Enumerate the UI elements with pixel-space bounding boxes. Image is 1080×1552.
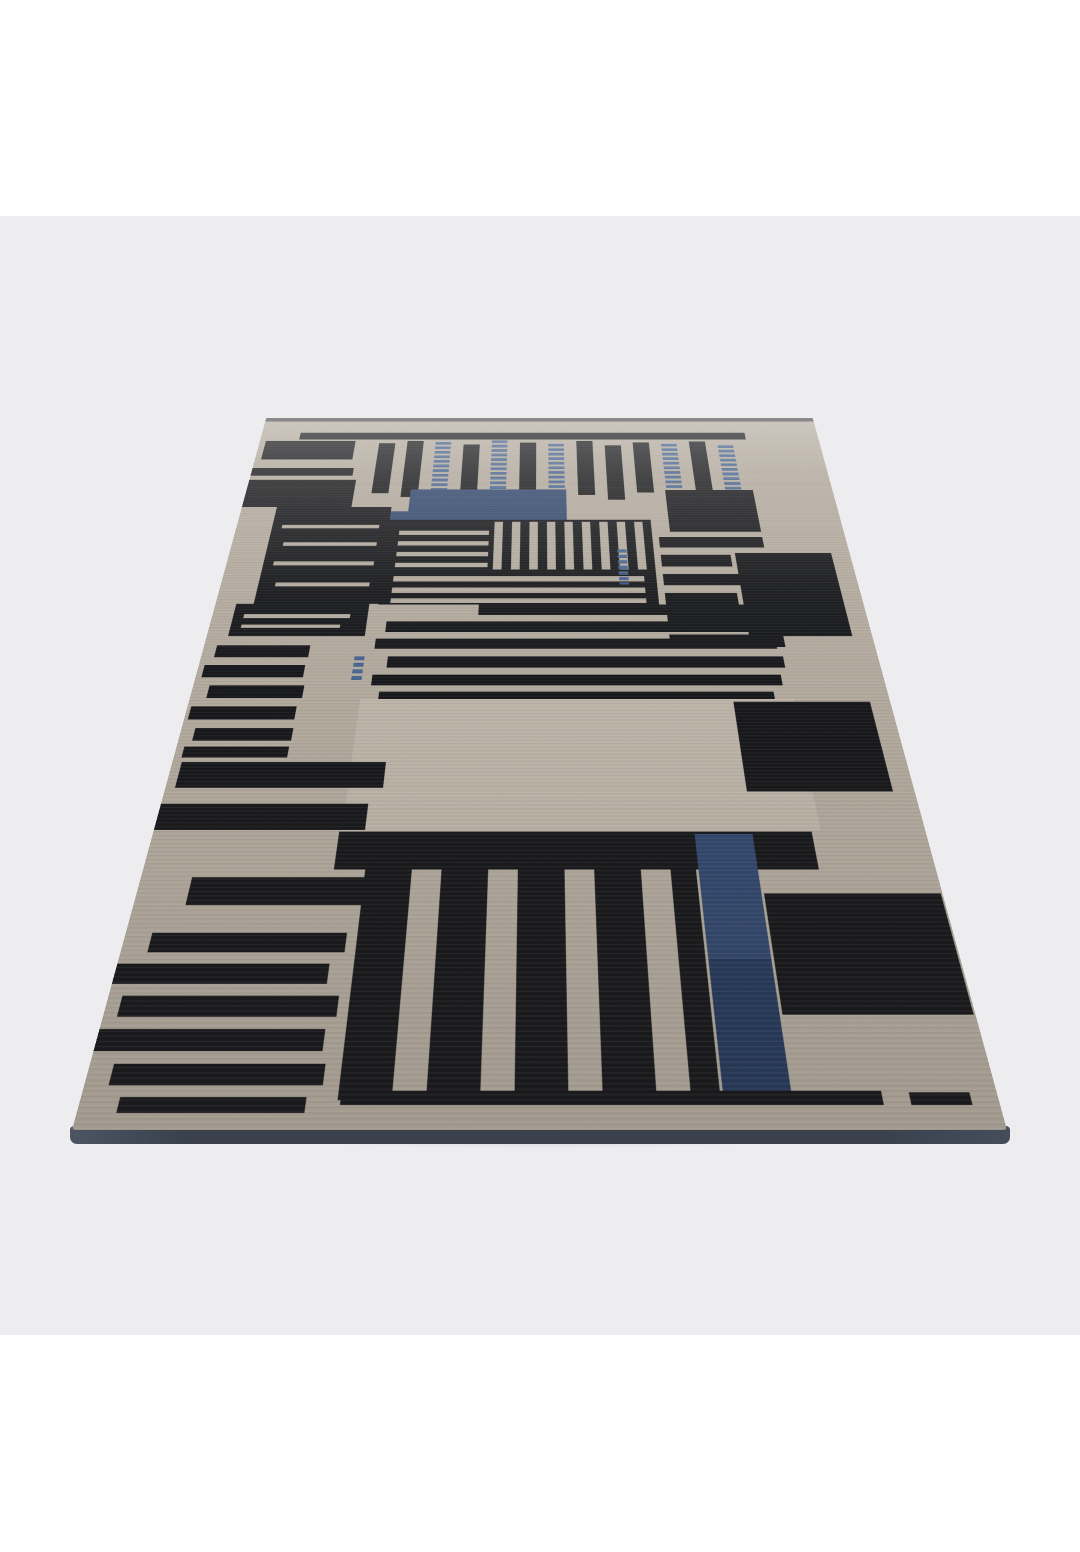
photo-alt-text: Studio product photograph of a rectangul… <box>0 0 1 1</box>
product-photo: Studio product photograph of a rectangul… <box>0 0 1080 1552</box>
